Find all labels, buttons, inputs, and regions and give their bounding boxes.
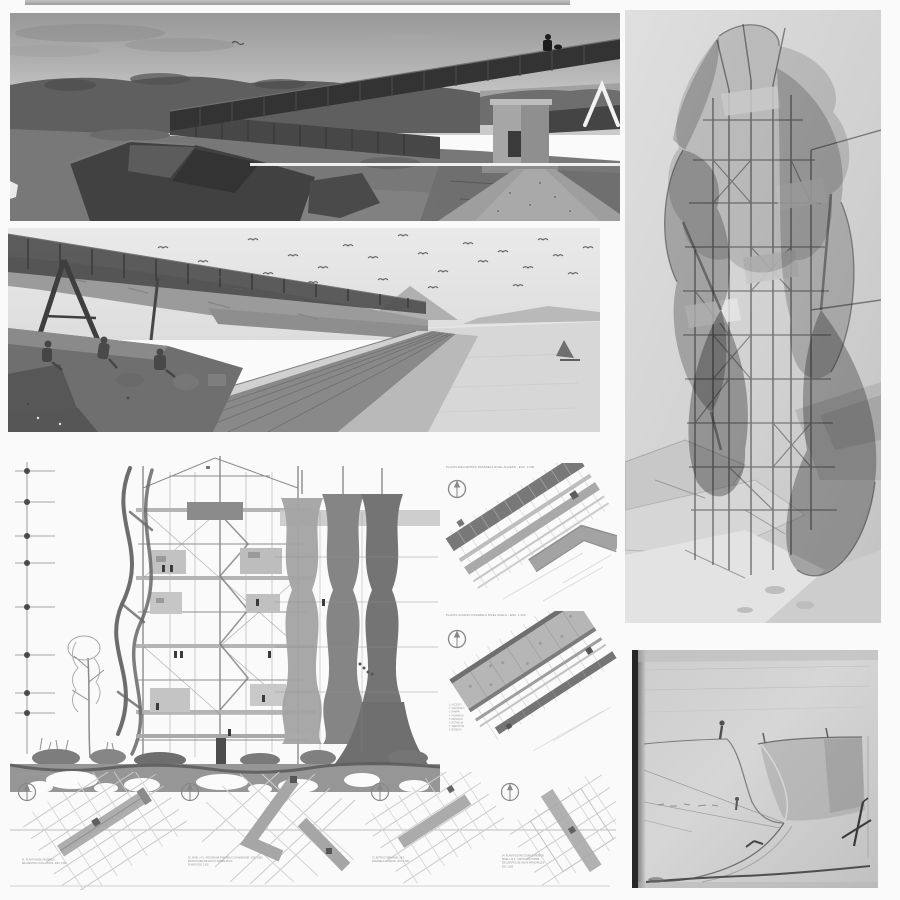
page-edge-gradient (638, 650, 646, 888)
sketch-panel (632, 650, 878, 888)
floor-plan-1 (19, 772, 191, 890)
plan2-drawing (443, 611, 617, 757)
portfolio-sheet: ESCALA GRAFICA 1 : 100 PLANTA ENCUENTRO … (0, 0, 900, 900)
model-photo-panel (625, 10, 881, 623)
plan2-extension-lines (533, 707, 611, 751)
coastal-render-panel (8, 228, 600, 432)
caption-line: ENCUENTRO CON LA ROCA - ESC 1:500 (22, 862, 66, 866)
caption-1: 01. PLANTA NIVEL PASARELA ENCUENTRO CON … (22, 858, 66, 865)
north-arrow-icon (19, 784, 36, 801)
detail-plan-1: PLANTA ENCUENTRO PASARELA NIVEL ACCESO -… (443, 463, 617, 611)
level-dimension-line (15, 462, 55, 754)
plan2-title: PLANTA ACCESO PASARELA NIVEL SUELO - ESC… (446, 613, 526, 617)
caption-line: PLANTA ESC 1:500 (188, 863, 262, 867)
plan1-drawing (443, 463, 617, 611)
section-drawing-image (10, 452, 440, 792)
tower-section-drawing: ESCALA GRAFICA 1 : 100 (10, 452, 440, 792)
plan2-linework (446, 611, 617, 744)
plan1-linework (443, 463, 617, 611)
plan1-title: PLANTA ENCUENTRO PASARELA NIVEL ACCESO -… (446, 465, 534, 469)
floor-plans-strip: 01. PLANTA NIVEL PASARELA ENCUENTRO CON … (10, 772, 616, 890)
caption-2: 02. NIVEL +4.5 - PROGRAMA PASARELA CON M… (188, 856, 262, 867)
caption-3: 03. ESTRUCTURA NIVEL +9.0 PASARELA MIRAD… (372, 856, 409, 863)
rooms (150, 548, 286, 712)
legend-item: 8. BODEGA (449, 728, 465, 732)
north-arrow-icon (372, 784, 389, 801)
foreground-rocks-people (8, 328, 243, 432)
floor-plan-2 (202, 772, 355, 884)
page-edge-shadow (632, 650, 638, 888)
model-photo-image (625, 10, 881, 623)
floor-plans-drawing (10, 772, 616, 890)
north-arrow-icon (449, 481, 466, 498)
bridge-render-image (10, 13, 620, 221)
plan-legend: 1. ACCESO 2. VESTIBULO 3. RAMPA 4. PASAR… (449, 703, 465, 732)
shore-blob (648, 877, 664, 883)
sketch-image (632, 650, 878, 888)
caption-4: 04. PLANTA ESTRUCTURA SUPERIOR NIVEL +13… (502, 854, 544, 868)
top-shade (638, 650, 878, 662)
bridge-render-panel (10, 13, 620, 221)
top-image-sliver (25, 0, 570, 5)
floor-plan-3 (362, 772, 508, 890)
bottom-shade (638, 882, 878, 888)
coastal-render-image (8, 228, 600, 432)
detail-plan-2: PLANTA ACCESO PASARELA NIVEL SUELO - ESC… (443, 611, 617, 757)
caption-line: ESC 1:500 (502, 865, 544, 869)
caption-line: PASARELA MIRADOR - ESC 1:500 (372, 860, 409, 864)
vegetation (40, 636, 114, 758)
north-arrow-icon (449, 631, 466, 648)
north-arrow-icon (182, 784, 199, 801)
north-arrow-icon (502, 784, 519, 801)
